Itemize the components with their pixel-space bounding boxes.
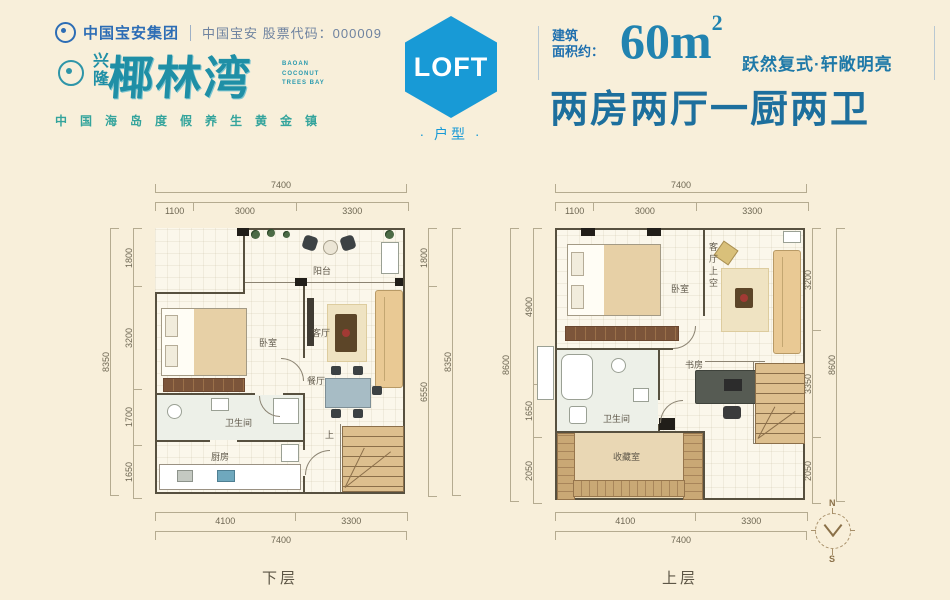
logo-group-name: 中国宝安集团 xyxy=(83,22,179,43)
pillow xyxy=(165,345,178,367)
dim-label: 1100 xyxy=(565,206,584,216)
shelf xyxy=(683,433,703,500)
door-arc xyxy=(673,326,696,349)
wall xyxy=(243,228,245,294)
desk-chair xyxy=(723,406,741,419)
brand-name-english: BAOAN COCONUT TREES BAY xyxy=(282,60,340,89)
bath-wall xyxy=(303,393,305,440)
dim-label: 4900 xyxy=(524,297,534,317)
dim-label: 1100 xyxy=(165,206,184,216)
area-slogan: 跃然复式·轩敞明亮 xyxy=(742,50,893,75)
pillow xyxy=(571,285,584,309)
wardrobe xyxy=(565,326,679,341)
coffee-table xyxy=(335,314,357,352)
void-railing xyxy=(705,361,765,362)
room-label-balcony: 阳台 xyxy=(313,264,331,277)
compass: N S xyxy=(815,500,851,560)
plan1-dim-bottom-segments: 4100 3300 xyxy=(155,512,405,521)
dim-label: 7400 xyxy=(671,535,691,545)
dim-label: 3000 xyxy=(235,206,255,216)
sofa xyxy=(375,290,403,388)
balcony-wall xyxy=(245,282,403,283)
wall xyxy=(155,292,245,294)
balcony-table xyxy=(323,240,338,255)
dim-label: 3300 xyxy=(342,206,362,216)
area-value: 60m2 xyxy=(620,10,723,70)
loft-badge: LOFT xyxy=(405,16,497,118)
dim-label: 6550 xyxy=(419,382,429,402)
ac-unit xyxy=(783,231,801,243)
bath-wall xyxy=(658,350,660,400)
plan1-dim-left-segments: 1800 3200 1700 1650 xyxy=(133,228,142,494)
toilet xyxy=(167,404,182,419)
ac-unit xyxy=(381,242,399,274)
sink xyxy=(633,388,649,402)
room-label-bath: 卫生间 xyxy=(603,412,630,425)
bed xyxy=(161,308,247,376)
dim-label: 7400 xyxy=(271,180,291,190)
poster: 中国宝安集团 中国宝安 股票代码：000009 兴隆 椰林湾 BAOAN COC… xyxy=(0,0,950,600)
staircase xyxy=(342,426,404,492)
dim-label: 3200 xyxy=(124,328,134,348)
brand-seal-icon xyxy=(58,60,84,86)
unit-type-label: · 户型 · xyxy=(399,124,503,144)
dim-label: 3300 xyxy=(341,516,361,526)
floor-plan-upper: 卧室 客厅上空 卫生间 书房 收藏室 xyxy=(555,228,805,500)
compass-needle xyxy=(832,524,843,537)
sofa xyxy=(773,250,801,354)
plan2-dim-bottom-segments: 4100 3300 xyxy=(555,512,805,521)
sink xyxy=(211,398,229,411)
area-prefix-line1: 建筑 xyxy=(552,28,604,44)
fridge xyxy=(281,444,299,462)
room-label-bath: 卫生间 xyxy=(225,416,252,429)
dim-label: 3300 xyxy=(742,206,762,216)
dining-chair xyxy=(331,409,341,418)
kitchen-wall xyxy=(303,440,305,450)
room-label-living-void: 客厅上空 xyxy=(707,242,720,290)
dining-chair xyxy=(331,366,341,375)
compass-tick xyxy=(850,530,855,531)
column xyxy=(295,278,307,286)
plan1-dim-right-total: 8350 xyxy=(452,228,461,494)
dim-label: 8600 xyxy=(501,355,511,375)
kitchen-wall xyxy=(303,476,305,494)
dining-chair xyxy=(353,366,363,375)
plan2-dim-left-total: 8600 xyxy=(510,228,519,500)
dim-label: 1650 xyxy=(524,401,534,421)
kitchen-wall xyxy=(155,440,210,442)
dining-chair xyxy=(372,386,382,395)
compass-dial xyxy=(815,513,851,549)
shelf xyxy=(573,480,685,497)
header-divider-right xyxy=(934,26,935,80)
column xyxy=(647,228,661,236)
flower-decor xyxy=(342,329,350,337)
plan2-dim-right-total: 8600 xyxy=(836,228,845,500)
stair-wall xyxy=(340,424,341,492)
balcony-chair xyxy=(339,234,357,252)
dim-label: 1800 xyxy=(124,248,134,268)
logo-divider xyxy=(190,25,191,41)
room-label-kitchen: 厨房 xyxy=(211,450,229,463)
blanket xyxy=(604,245,660,315)
plan1-dim-bottom-total: 7400 xyxy=(155,531,405,540)
plant-icon xyxy=(267,229,275,237)
room-label-bedroom: 卧室 xyxy=(259,336,277,349)
dim-label: 4100 xyxy=(615,516,635,526)
dim-label: 1650 xyxy=(124,462,134,482)
storage-wall xyxy=(703,431,705,500)
dim-label: 1800 xyxy=(419,248,429,268)
wardrobe xyxy=(163,378,245,392)
bed xyxy=(567,244,661,316)
brand-seal-text: 兴隆 xyxy=(86,52,110,88)
cooktop xyxy=(217,470,235,482)
room-label-storage: 收藏室 xyxy=(613,450,640,463)
bedroom-wall xyxy=(703,228,705,316)
plant-icon xyxy=(385,230,394,239)
column xyxy=(395,278,403,286)
area-prefix: 建筑 面积约： xyxy=(552,28,604,61)
room-label-study: 书房 xyxy=(685,358,703,371)
wall xyxy=(555,498,805,500)
column xyxy=(237,228,249,236)
flower-decor xyxy=(740,294,748,302)
blanket xyxy=(194,309,246,375)
brand-name: 椰林湾 xyxy=(106,42,255,108)
room-label-dining: 餐厅 xyxy=(307,374,325,387)
plan2-dim-bottom-total: 7400 xyxy=(555,531,805,540)
room-label-bedroom: 卧室 xyxy=(671,282,689,295)
page-title: 两房两厅一厨两卫 xyxy=(550,78,870,133)
plant-icon xyxy=(283,231,290,238)
dim-label: 8350 xyxy=(443,352,453,372)
dim-label: 7400 xyxy=(671,180,691,190)
bathtub xyxy=(561,354,593,400)
dim-label: 8600 xyxy=(827,355,837,375)
plant-icon xyxy=(251,230,260,239)
plan1-dim-top-segments: 1100 3000 3300 xyxy=(155,202,405,211)
door-arc xyxy=(305,450,330,475)
dim-label: 1700 xyxy=(124,407,134,427)
plan2-dim-top-segments: 1100 3000 3300 xyxy=(555,202,805,211)
stair-fan-line xyxy=(345,451,391,487)
sofa-cushion xyxy=(384,297,385,381)
bedroom-wall xyxy=(303,282,305,358)
dim-label: 7400 xyxy=(271,535,291,545)
loft-badge-label: LOFT xyxy=(414,52,488,83)
area-sup: 2 xyxy=(712,10,723,35)
staircase xyxy=(755,363,805,444)
dim-label: 2050 xyxy=(524,461,534,481)
dim-label: 3300 xyxy=(741,516,761,526)
dining-table xyxy=(325,378,371,408)
dim-label: 8350 xyxy=(101,352,111,372)
compass-south-label: S xyxy=(829,554,835,564)
wall xyxy=(155,492,405,494)
stair-fan-line xyxy=(345,448,365,488)
dim-label: 3000 xyxy=(635,206,655,216)
dim-label: 4100 xyxy=(215,516,235,526)
logo-row: 中国宝安集团 中国宝安 股票代码：000009 xyxy=(55,22,382,43)
stair-fan-line xyxy=(758,406,776,438)
pillow xyxy=(571,252,584,276)
stairs-up-label: 上 xyxy=(325,428,334,441)
sofa-cushion xyxy=(782,257,783,347)
compass-tick xyxy=(811,530,816,531)
plan1-dim-left-total: 8350 xyxy=(110,228,119,494)
room-label-living: 客厅 xyxy=(312,326,330,339)
header-divider-left xyxy=(538,26,539,80)
floor-plan-lower: 阳台 卧室 客厅 餐厅 卫生间 xyxy=(155,228,405,494)
door-arc xyxy=(660,400,683,423)
area-number: 60m xyxy=(620,13,712,69)
plan2-dim-right-segments: 3200 3350 2050 xyxy=(812,228,821,500)
area-prefix-line2: 面积约： xyxy=(552,44,604,60)
ac-platform xyxy=(537,346,554,400)
door-arc xyxy=(281,358,304,381)
stock-code-text: 中国宝安 股票代码：000009 xyxy=(202,23,382,42)
brand-tagline: 中国海岛度假养生黄金镇 xyxy=(55,112,330,129)
coffee-table xyxy=(735,288,753,308)
toilet xyxy=(611,358,626,373)
dining-chair xyxy=(353,409,363,418)
column xyxy=(581,228,595,236)
washer xyxy=(569,406,587,424)
floor-label-lower: 下层 xyxy=(155,567,405,588)
plan1-dim-right-segments: 1800 6550 xyxy=(428,228,437,494)
baoan-logo-icon xyxy=(55,22,76,43)
pillow xyxy=(165,315,178,337)
kitchen-wall xyxy=(237,440,305,442)
plan1-dim-top-total: 7400 xyxy=(155,184,405,193)
floor-label-upper: 上层 xyxy=(555,567,805,588)
compass-north-label: N xyxy=(829,498,836,508)
kitchen-sink xyxy=(177,470,193,482)
balcony-chair xyxy=(301,234,319,252)
plan2-dim-top-total: 7400 xyxy=(555,184,805,193)
laptop xyxy=(724,379,742,391)
